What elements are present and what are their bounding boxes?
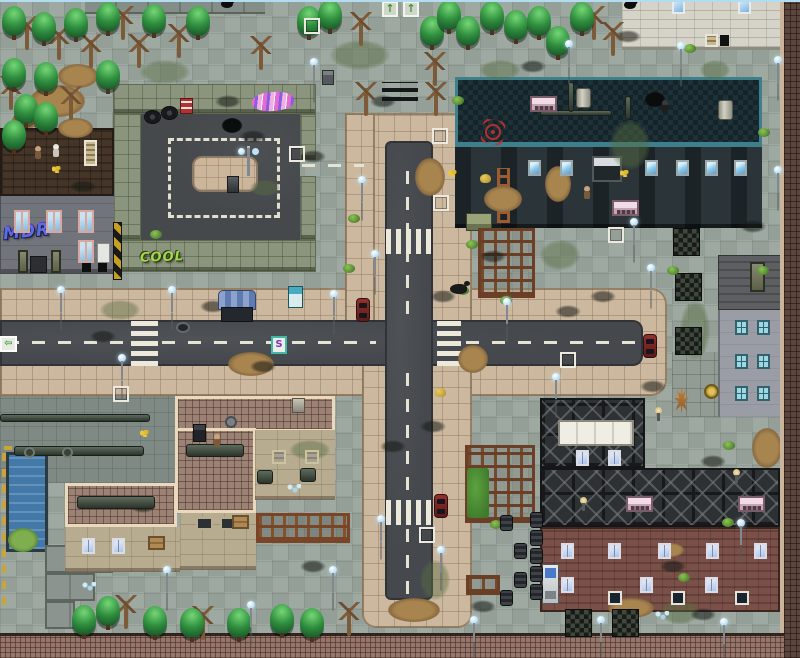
dirt-patche xyxy=(484,186,522,212)
house-windows-r1-window xyxy=(706,543,719,559)
pine xyxy=(2,58,26,88)
marker xyxy=(560,352,576,368)
house-windows-r2-window xyxy=(705,577,718,593)
bushe xyxy=(722,518,734,527)
pipe xyxy=(0,414,150,422)
pine xyxy=(270,604,294,634)
dead-tree xyxy=(128,34,150,68)
bushe xyxy=(758,128,770,137)
pine xyxy=(2,6,26,36)
dead-tree xyxy=(425,82,447,116)
lamp xyxy=(597,616,605,642)
lamp xyxy=(630,218,638,244)
house-windows-r2-window xyxy=(561,577,574,593)
graffiti-cool: COOL xyxy=(140,249,184,266)
lamp xyxy=(371,250,379,276)
dead-tree xyxy=(250,36,272,70)
marker xyxy=(433,195,449,211)
boarded-window-window xyxy=(232,515,249,529)
up-arrow: ↑ xyxy=(382,1,398,17)
game-map[interactable]: MDR COOL ↑↑⇦S xyxy=(0,0,800,658)
stain xyxy=(740,220,766,233)
house-sign-window xyxy=(735,591,749,605)
flower xyxy=(620,170,629,177)
marker xyxy=(432,128,448,144)
pine xyxy=(96,596,120,626)
dirt-patche xyxy=(58,118,93,138)
console xyxy=(626,496,653,512)
mat xyxy=(612,609,639,637)
gray-building-wall xyxy=(718,310,784,417)
vending-machine xyxy=(542,564,559,604)
crystal xyxy=(655,611,669,621)
tank xyxy=(718,100,733,120)
barrel xyxy=(514,572,527,588)
left-window-window xyxy=(78,240,94,263)
round-hatch xyxy=(225,416,237,428)
mos xyxy=(100,300,140,320)
crosswalk-south xyxy=(386,500,433,525)
figures-dark xyxy=(661,100,669,113)
lamp xyxy=(329,566,337,592)
chick xyxy=(480,174,491,183)
lamp xyxy=(774,166,782,192)
gray-window-window xyxy=(735,320,748,335)
pipe xyxy=(257,470,273,484)
dirt-patche xyxy=(458,345,488,373)
stain xyxy=(240,130,266,143)
left-arrow: ⇦ xyxy=(0,336,17,352)
white-window-window xyxy=(672,0,685,14)
red-sign xyxy=(180,98,193,114)
house-windows-r1-window xyxy=(658,543,671,559)
flower xyxy=(140,430,149,437)
lab-window-window xyxy=(734,160,747,176)
lab-window-window xyxy=(560,160,573,176)
wall-hatch xyxy=(705,34,718,47)
market-stall xyxy=(218,290,254,320)
wallA-window-window xyxy=(272,450,286,464)
lamp xyxy=(358,176,366,202)
lamp xyxy=(168,286,176,312)
pine xyxy=(300,608,324,638)
dark-window xyxy=(720,35,729,46)
road-center-line xyxy=(440,341,636,344)
roof-box xyxy=(292,398,305,413)
dead-tree xyxy=(350,12,372,46)
pipe xyxy=(77,496,155,509)
car xyxy=(643,334,657,358)
lamp xyxy=(677,42,685,68)
house-sign-window xyxy=(671,591,685,605)
poster xyxy=(97,243,110,263)
trash-bin xyxy=(322,70,334,85)
rust-fence xyxy=(256,513,350,543)
figures-brown xyxy=(583,186,591,199)
crow xyxy=(624,1,636,9)
brick-wall-right xyxy=(784,0,800,658)
gray-window-window xyxy=(757,386,770,401)
garage-panel xyxy=(558,420,634,446)
girder-lamp xyxy=(655,407,662,421)
mos xyxy=(480,60,520,80)
dirt-patche xyxy=(388,598,440,622)
left-window-window xyxy=(46,210,62,233)
bushe xyxy=(348,214,360,223)
wallA-window-window xyxy=(305,450,319,464)
lamp xyxy=(330,290,338,316)
left-building-entry xyxy=(30,256,47,273)
roof-hatch xyxy=(84,140,97,166)
lamp xyxy=(437,546,445,572)
figures-brown xyxy=(34,146,42,159)
bushe xyxy=(343,264,355,273)
marker xyxy=(113,386,129,402)
algae xyxy=(8,528,38,552)
pine xyxy=(504,10,528,40)
red-graffiti xyxy=(480,118,506,145)
bushe xyxy=(678,573,690,582)
pipe xyxy=(568,82,574,112)
house-windows-r1-window xyxy=(561,543,574,559)
lamp xyxy=(470,616,478,642)
pine xyxy=(186,6,210,36)
chick xyxy=(435,388,446,397)
console xyxy=(530,96,557,112)
dead-tree xyxy=(80,34,102,68)
parking-wall-right xyxy=(300,176,316,240)
mos xyxy=(610,120,650,170)
bushe xyxy=(723,441,735,450)
house-sign-window xyxy=(608,591,622,605)
marker xyxy=(289,146,305,162)
lab-window-window xyxy=(676,160,689,176)
pine xyxy=(72,605,96,635)
lab-window-window xyxy=(705,160,718,176)
grass-patch xyxy=(467,468,489,518)
bushe xyxy=(150,230,162,239)
parking-exit-line xyxy=(302,164,364,167)
mos xyxy=(700,60,730,80)
marker xyxy=(608,227,624,243)
bushe xyxy=(452,96,464,105)
brick-path-bottom xyxy=(0,633,800,658)
pine xyxy=(32,12,56,42)
barrel xyxy=(530,566,543,582)
stain xyxy=(380,440,406,453)
lamp xyxy=(552,373,560,399)
lamp xyxy=(163,566,171,592)
hazard-stripe-column xyxy=(113,222,122,280)
barrel xyxy=(530,512,543,528)
stone-blocks xyxy=(45,601,75,629)
up-arrow: ↑ xyxy=(403,1,419,17)
pine xyxy=(318,0,342,30)
mos xyxy=(540,240,580,270)
girder-window-window xyxy=(608,450,621,466)
pine xyxy=(34,62,58,92)
pine xyxy=(96,60,120,90)
figures-brown xyxy=(213,434,221,447)
lamp xyxy=(503,298,511,324)
lamp xyxy=(774,56,782,82)
girder-lamp xyxy=(580,497,587,511)
white-window-window xyxy=(738,0,751,14)
pine xyxy=(180,608,204,638)
pine xyxy=(2,120,26,150)
ac-unit xyxy=(193,424,206,442)
lab-window-window xyxy=(528,160,541,176)
mat xyxy=(673,228,700,256)
street-lamp-double xyxy=(238,146,260,176)
dead-tree xyxy=(338,602,360,636)
crystal xyxy=(82,582,96,592)
flower xyxy=(448,170,457,177)
barrel xyxy=(500,515,513,531)
white-building xyxy=(622,0,782,50)
pipe xyxy=(300,468,316,482)
barrel xyxy=(530,530,543,546)
dead-tree xyxy=(355,82,377,116)
marker xyxy=(304,18,320,34)
tire xyxy=(161,106,178,120)
pipe xyxy=(625,96,631,120)
crosswalk-west xyxy=(131,321,158,366)
console xyxy=(738,496,765,512)
wallC-window-window xyxy=(112,538,125,554)
barrel xyxy=(530,548,543,564)
stain xyxy=(215,95,241,108)
window-edge xyxy=(0,0,800,2)
pine xyxy=(142,4,166,34)
dead-tree xyxy=(602,22,624,56)
boarded-window-window xyxy=(148,536,165,550)
pine xyxy=(96,2,120,32)
lamp xyxy=(737,519,745,545)
mos xyxy=(420,560,450,600)
valve xyxy=(62,447,73,458)
pine xyxy=(456,16,480,46)
hole xyxy=(222,118,242,133)
wallA2-window-window xyxy=(196,517,213,530)
s-sign: S xyxy=(271,336,287,354)
stain xyxy=(470,600,496,613)
tire xyxy=(144,110,161,124)
wallC-window-window xyxy=(82,538,95,554)
valve xyxy=(24,447,35,458)
dirt-patche xyxy=(415,158,445,196)
house-windows-r1-window xyxy=(608,543,621,559)
vent xyxy=(98,262,107,272)
mat xyxy=(565,609,592,637)
car xyxy=(434,494,448,518)
marker xyxy=(419,527,435,543)
pine xyxy=(143,606,167,636)
flower xyxy=(52,166,61,173)
manhole xyxy=(176,322,190,333)
stain xyxy=(660,560,686,573)
mat xyxy=(675,327,702,355)
pool-rail xyxy=(2,450,6,605)
stain xyxy=(590,290,616,303)
parking-meter xyxy=(227,176,239,193)
stain xyxy=(640,380,666,393)
lamp xyxy=(720,618,728,644)
barrel xyxy=(514,543,527,559)
bushe xyxy=(466,240,478,249)
stain xyxy=(690,608,716,621)
gray-window-window xyxy=(735,354,748,369)
girder-lamp xyxy=(733,469,740,483)
vending-machine xyxy=(288,286,303,308)
house-windows-r1-window xyxy=(754,543,767,559)
barrel xyxy=(500,590,513,606)
stain xyxy=(70,180,96,193)
pine xyxy=(480,1,504,31)
house-windows-r2-window xyxy=(640,577,653,593)
dead-tree xyxy=(60,86,82,120)
stain xyxy=(300,560,326,573)
road-center-line xyxy=(406,372,409,594)
console xyxy=(612,200,639,216)
stain xyxy=(480,250,506,263)
medallion xyxy=(704,384,719,399)
tank xyxy=(576,88,591,108)
dead-tree xyxy=(424,52,446,86)
left-window-window xyxy=(14,210,30,233)
left-building-door xyxy=(18,250,28,273)
lamp xyxy=(647,264,655,290)
gray-window-window xyxy=(757,320,770,335)
barrel xyxy=(530,584,543,600)
crosswalk-north xyxy=(386,229,433,254)
mat xyxy=(675,273,702,301)
left-window-window xyxy=(78,210,94,233)
stain xyxy=(90,330,116,343)
pine xyxy=(570,2,594,32)
lattice-plot xyxy=(478,228,535,298)
stain xyxy=(700,455,726,468)
lattice-plot xyxy=(466,575,500,595)
road-center-line xyxy=(6,341,376,344)
dirt-patche xyxy=(752,428,782,468)
dog xyxy=(450,284,467,294)
lamp xyxy=(247,601,255,627)
lamp xyxy=(377,515,385,541)
stain xyxy=(520,60,546,73)
lamp xyxy=(118,354,126,380)
girder-window-window xyxy=(576,450,589,466)
gray-window-window xyxy=(735,386,748,401)
stain xyxy=(420,420,446,433)
stain xyxy=(555,305,581,318)
lamp xyxy=(310,58,318,84)
gray-window-window xyxy=(757,354,770,369)
crystal xyxy=(287,484,301,494)
bushe xyxy=(757,266,769,275)
bushe xyxy=(684,44,696,53)
figures-white xyxy=(52,144,60,157)
pine xyxy=(64,8,88,38)
mos xyxy=(250,180,280,196)
stain xyxy=(250,360,276,373)
lamp xyxy=(565,40,573,66)
left-building-door xyxy=(51,250,61,273)
pine xyxy=(34,102,58,132)
lab-window-window xyxy=(645,160,658,176)
street-grate xyxy=(382,82,418,101)
car xyxy=(356,298,370,322)
bushe xyxy=(667,266,679,275)
lamp xyxy=(57,286,65,312)
vent xyxy=(82,262,91,272)
